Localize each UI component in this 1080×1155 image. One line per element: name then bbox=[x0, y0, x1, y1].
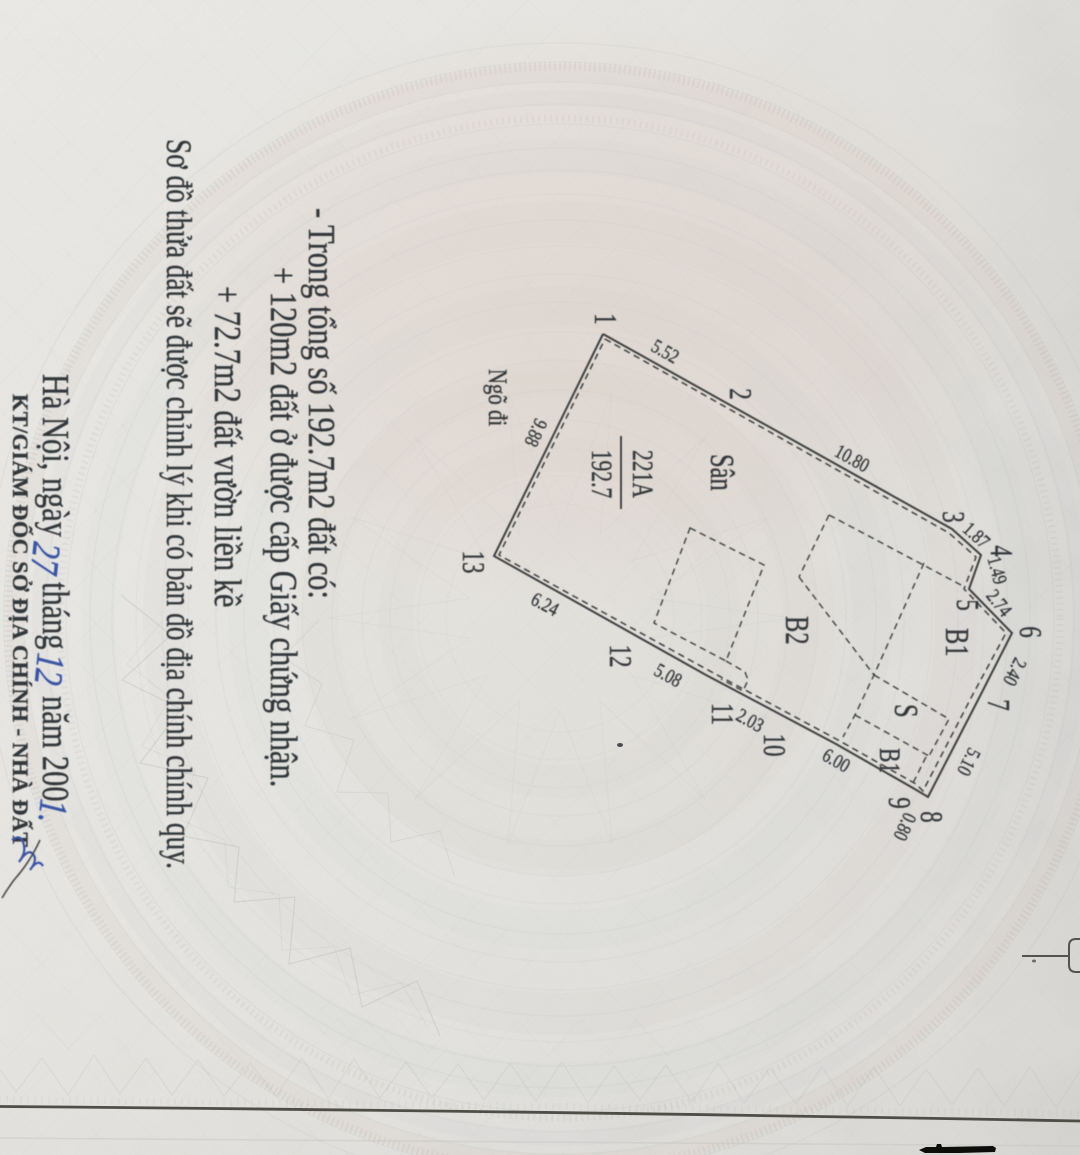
svg-text:Sân: Sân bbox=[703, 454, 740, 491]
svg-text:Hà Nội, ngày: Hà Nội, ngày bbox=[34, 374, 76, 538]
svg-text:- Trong tổng số 192.7m2 đất có: - Trong tổng số 192.7m2 đất có: bbox=[300, 208, 342, 599]
svg-text:1.: 1. bbox=[30, 797, 76, 825]
svg-text:B1: B1 bbox=[938, 628, 975, 657]
svg-text:192.7: 192.7 bbox=[585, 450, 618, 499]
svg-text:6: 6 bbox=[1012, 626, 1048, 638]
svg-text:27: 27 bbox=[22, 540, 69, 578]
svg-text:9: 9 bbox=[881, 797, 917, 809]
svg-text:S: S bbox=[887, 704, 924, 718]
svg-text:3: 3 bbox=[935, 511, 971, 523]
svg-text:B1: B1 bbox=[873, 748, 906, 773]
svg-text:2: 2 bbox=[722, 388, 758, 400]
svg-text:221A: 221A bbox=[626, 450, 659, 498]
svg-text:10: 10 bbox=[756, 733, 792, 756]
svg-text:13: 13 bbox=[455, 550, 491, 573]
svg-text:7: 7 bbox=[980, 699, 1016, 711]
svg-text:+ 120m2 đất ở được cấp Giấy ch: + 120m2 đất ở được cấp Giấy chứng nhận. bbox=[262, 267, 304, 787]
svg-text:B2: B2 bbox=[778, 616, 815, 645]
svg-text:1: 1 bbox=[587, 313, 623, 325]
svg-text:12: 12 bbox=[602, 644, 638, 667]
svg-text:+ 72.7m2 đất vườn liền kề: + 72.7m2 đất vườn liền kề bbox=[206, 286, 248, 608]
svg-text:Sơ đồ thửa đất sẽ được chỉnh l: Sơ đồ thửa đất sẽ được chỉnh lý khi có b… bbox=[159, 139, 198, 869]
svg-text:12: 12 bbox=[26, 651, 73, 687]
svg-text:Ngõ đi: Ngõ đi bbox=[482, 369, 511, 427]
svg-text:năm 200: năm 200 bbox=[34, 696, 76, 802]
svg-text:KT/GIÁM ĐỐC SỞ ĐỊA CHÍNH - NHÀ: KT/GIÁM ĐỐC SỞ ĐỊA CHÍNH - NHÀ ĐẤT bbox=[8, 394, 33, 848]
svg-text:tháng: tháng bbox=[34, 582, 76, 650]
svg-text:5: 5 bbox=[949, 599, 985, 611]
